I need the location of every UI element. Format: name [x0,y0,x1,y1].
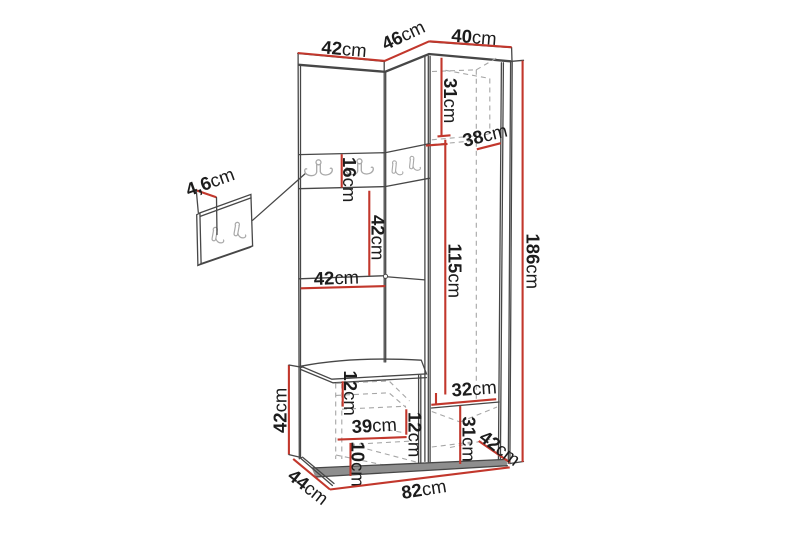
svg-text:12cm: 12cm [405,412,426,457]
svg-text:186cm: 186cm [523,234,544,290]
svg-text:42cm: 42cm [313,266,359,289]
svg-text:42cm: 42cm [270,388,291,433]
svg-text:12cm: 12cm [340,371,361,416]
svg-text:115cm: 115cm [445,244,466,299]
svg-text:16cm: 16cm [339,157,360,202]
svg-text:10cm: 10cm [348,442,369,487]
svg-text:42cm: 42cm [321,36,368,61]
svg-text:39cm: 39cm [351,414,397,437]
svg-text:31cm: 31cm [459,417,480,462]
svg-text:42cm: 42cm [368,215,389,260]
svg-text:40cm: 40cm [451,25,498,49]
svg-text:31cm: 31cm [440,78,461,123]
svg-text:32cm: 32cm [451,376,498,400]
